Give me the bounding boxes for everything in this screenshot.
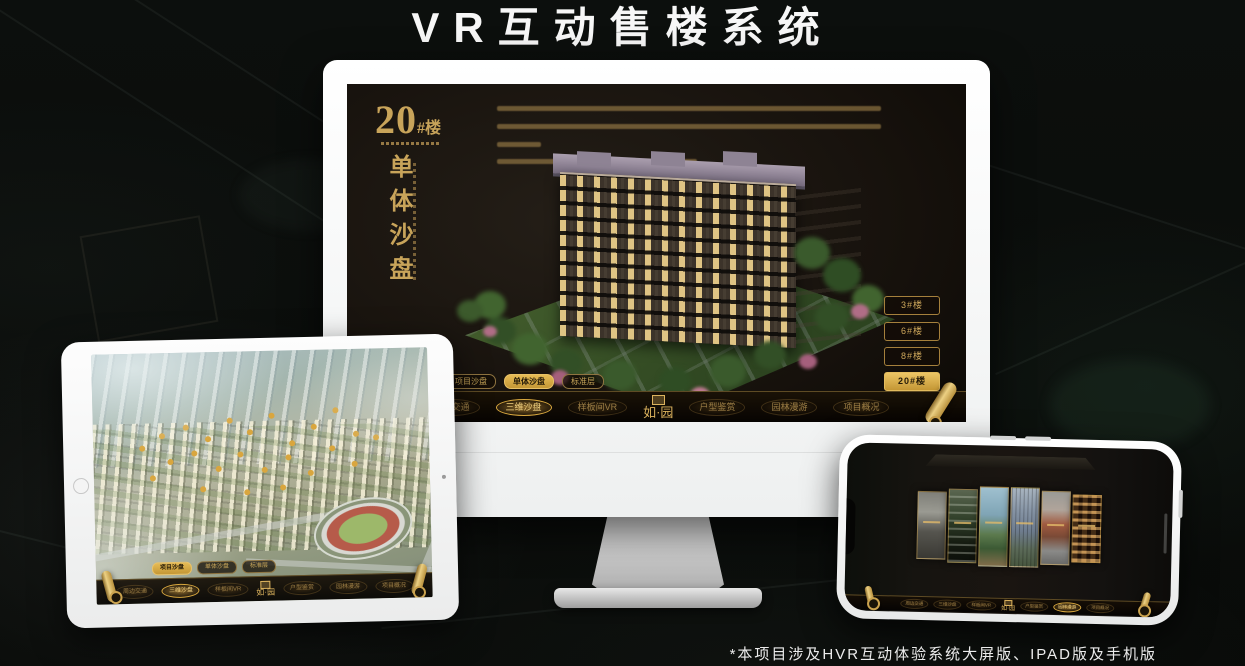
- footnote-text: *本项目涉及HVR互动体验系统大屏版、IPAD版及手机版: [730, 643, 1157, 664]
- building-model-render: [465, 150, 905, 410]
- block-number: 20: [375, 97, 417, 142]
- tab-standard-floor[interactable]: 标准层: [242, 560, 276, 574]
- volume-button[interactable]: [990, 436, 1016, 441]
- building-side-facade: [795, 186, 861, 344]
- phone-screen: 周边交通 三维沙盘 样板间VR 如·园 户型鉴赏 园林漫游 项目概况: [844, 442, 1174, 617]
- brand-logo-text: 如·园: [256, 588, 275, 597]
- nav-item-floorplans[interactable]: 户型鉴赏: [1020, 601, 1048, 612]
- floor-button-20[interactable]: 20#楼: [884, 372, 940, 391]
- tablet-device: 项目沙盘 单体沙盘 标准层 周边交通 三维沙盘 样板间VR 如·园 户型鉴赏 园…: [61, 334, 459, 629]
- power-button[interactable]: [1178, 490, 1183, 518]
- building-facade: [560, 172, 796, 348]
- courtyard-canopy: [925, 454, 1095, 470]
- page-title: VR互动售楼系统: [0, 0, 1245, 56]
- nav-item-3d-sandbox[interactable]: 三维沙盘: [162, 583, 200, 598]
- map-road-line: [960, 155, 1245, 287]
- nav-item-3d-sandbox[interactable]: 三维沙盘: [496, 399, 552, 416]
- tablet-screen: 项目沙盘 单体沙盘 标准层 周边交通 三维沙盘 样板间VR 如·园 户型鉴赏 园…: [91, 347, 433, 605]
- nav-item-showroom-vr[interactable]: 样板间VR: [966, 600, 996, 611]
- gallery-panel[interactable]: [1071, 494, 1102, 563]
- description-text-line: [497, 142, 541, 147]
- tab-project-sandbox[interactable]: 项目沙盘: [152, 562, 192, 576]
- gallery-panel[interactable]: [916, 491, 947, 560]
- map-plaque: [80, 215, 219, 343]
- nav-item-floorplans[interactable]: 户型鉴赏: [689, 399, 745, 416]
- notch: [845, 498, 855, 554]
- nav-item-project-overview[interactable]: 项目概况: [1086, 603, 1114, 614]
- block-number-suffix: #楼: [417, 120, 441, 137]
- floor-button-6[interactable]: 6#楼: [884, 322, 940, 341]
- roof-dormer: [651, 151, 685, 167]
- home-indicator: [1164, 514, 1168, 554]
- description-text-line: [497, 106, 881, 111]
- roof-dormer: [723, 151, 757, 167]
- gallery-panel[interactable]: [1009, 487, 1040, 568]
- floor-button-3[interactable]: 3#楼: [884, 296, 940, 315]
- brand-logo-text: 如·园: [643, 406, 673, 420]
- map-green-area: [1050, 360, 1210, 450]
- gallery-panels: [916, 482, 1102, 572]
- tab-standard-floor[interactable]: 标准层: [562, 374, 604, 389]
- brand-logo: 如·园: [643, 395, 673, 420]
- monitor-stand-base: [554, 588, 762, 608]
- nav-item-project-overview[interactable]: 项目概况: [833, 399, 889, 416]
- camera-icon: [442, 475, 446, 479]
- tab-single-sandbox[interactable]: 单体沙盘: [197, 561, 237, 575]
- nav-item-showroom-vr[interactable]: 样板间VR: [568, 399, 628, 416]
- description-text-line: [497, 124, 881, 129]
- gallery-panel[interactable]: [947, 489, 978, 564]
- gallery-panel[interactable]: [978, 486, 1009, 567]
- brand-logo: 如·园: [256, 580, 275, 597]
- gallery-panel[interactable]: [1040, 491, 1071, 566]
- nav-item-showroom-vr[interactable]: 样板间VR: [208, 582, 249, 597]
- headline-latin-caption: [381, 142, 441, 145]
- home-button[interactable]: [73, 478, 89, 494]
- monitor-stand: [592, 514, 724, 596]
- floor-button-8[interactable]: 8#楼: [884, 347, 940, 366]
- subtitle-latin-caption: [413, 160, 416, 280]
- brand-logo: 如·园: [1001, 600, 1015, 613]
- nav-item-traffic[interactable]: 周边交通: [900, 599, 928, 610]
- block-headline: 20#楼: [375, 96, 441, 143]
- nav-item-project-overview[interactable]: 项目概况: [375, 579, 413, 594]
- volume-button[interactable]: [1025, 436, 1051, 441]
- phone-device: 周边交通 三维沙盘 样板间VR 如·园 户型鉴赏 园林漫游 项目概况: [836, 434, 1182, 626]
- promo-canvas: VR互动售楼系统 20#楼 单体沙盘: [0, 0, 1245, 666]
- logo-seal-icon: [652, 395, 665, 405]
- nav-item-3d-sandbox[interactable]: 三维沙盘: [933, 599, 961, 610]
- nav-item-floorplans[interactable]: 户型鉴赏: [283, 581, 321, 596]
- phone-navbar: 周边交通 三维沙盘 样板间VR 如·园 户型鉴赏 园林漫游 项目概况: [844, 594, 1170, 616]
- sandbox-tabs: 项目沙盘 单体沙盘 标准层: [446, 374, 604, 389]
- landscape-flowers: [483, 326, 497, 337]
- nav-item-garden-tour[interactable]: 园林漫游: [329, 580, 367, 595]
- map-road-line: [995, 227, 1245, 375]
- tab-single-sandbox[interactable]: 单体沙盘: [504, 374, 554, 389]
- nav-item-garden-tour[interactable]: 园林漫游: [1053, 602, 1081, 613]
- nav-item-garden-tour[interactable]: 园林漫游: [761, 399, 817, 416]
- roof-dormer: [577, 151, 611, 167]
- brand-logo-text: 如·园: [1001, 606, 1015, 613]
- landscape-trees: [457, 300, 483, 322]
- block-subtitle-vertical: 单体沙盘: [381, 154, 416, 290]
